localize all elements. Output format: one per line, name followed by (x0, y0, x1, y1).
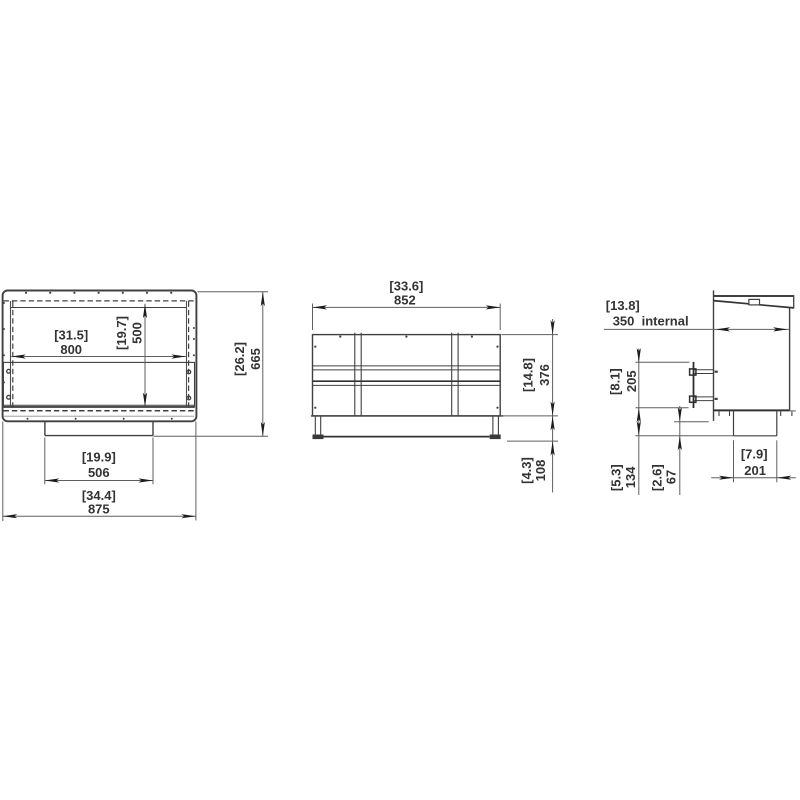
svg-text:[26.2]: [26.2] (232, 342, 247, 376)
svg-text:[33.6]: [33.6] (389, 278, 423, 293)
svg-text:[4.3]: [4.3] (519, 457, 534, 484)
svg-text:[8.1]: [8.1] (608, 368, 623, 395)
svg-text:875: 875 (88, 502, 110, 517)
svg-text:350 internal: 350 internal (613, 313, 689, 328)
svg-text:201: 201 (744, 463, 766, 478)
svg-text:[5.3]: [5.3] (608, 464, 623, 491)
svg-text:[7.9]: [7.9] (741, 447, 768, 462)
svg-text:376: 376 (537, 364, 552, 386)
svg-text:67: 67 (664, 470, 679, 484)
svg-text:[19.7]: [19.7] (114, 316, 129, 350)
svg-text:[2.6]: [2.6] (649, 464, 664, 491)
svg-text:852: 852 (394, 292, 416, 307)
svg-text:506: 506 (88, 465, 110, 480)
svg-text:205: 205 (624, 370, 639, 392)
svg-text:800: 800 (60, 342, 82, 357)
svg-text:134: 134 (623, 466, 638, 488)
svg-text:500: 500 (130, 322, 145, 344)
svg-text:665: 665 (248, 348, 263, 370)
svg-text:[19.9]: [19.9] (82, 450, 116, 465)
svg-text:[14.8]: [14.8] (521, 358, 536, 392)
svg-text:[31.5]: [31.5] (54, 327, 88, 342)
svg-text:108: 108 (533, 460, 548, 482)
svg-text:[13.8]: [13.8] (606, 298, 640, 313)
